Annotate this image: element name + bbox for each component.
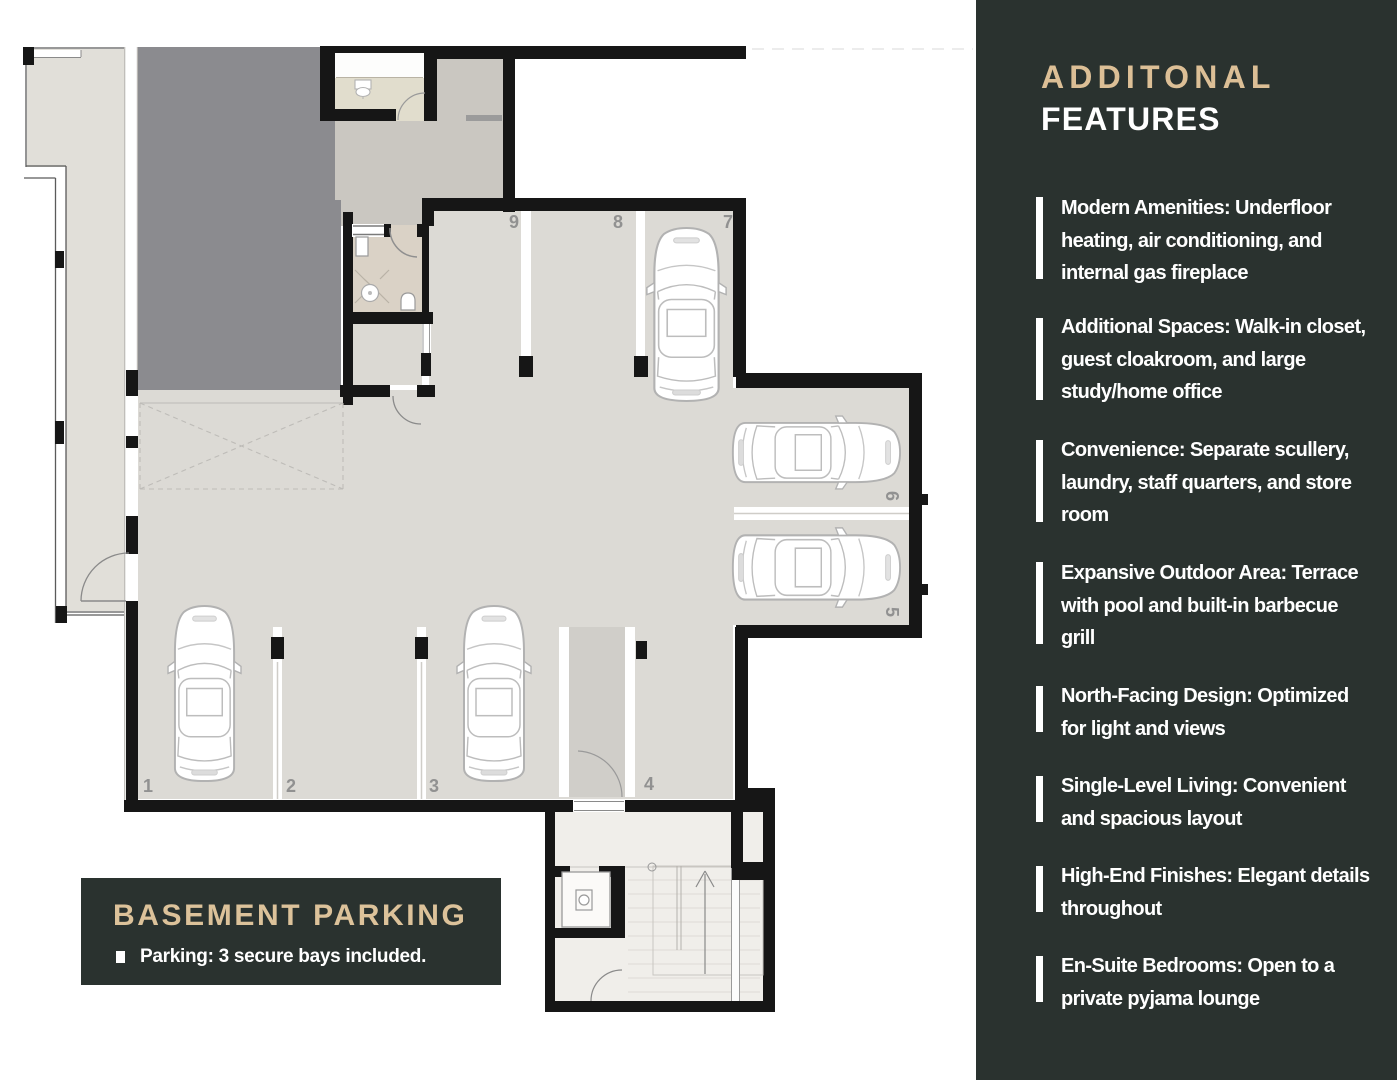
svg-text:8: 8 [613, 212, 623, 232]
svg-text:7: 7 [723, 212, 733, 232]
svg-text:5: 5 [882, 607, 902, 617]
svg-text:9: 9 [509, 212, 519, 232]
svg-text:6: 6 [882, 491, 902, 501]
svg-text:2: 2 [286, 776, 296, 796]
svg-text:3: 3 [429, 776, 439, 796]
svg-text:4: 4 [644, 774, 654, 794]
svg-text:1: 1 [143, 776, 153, 796]
